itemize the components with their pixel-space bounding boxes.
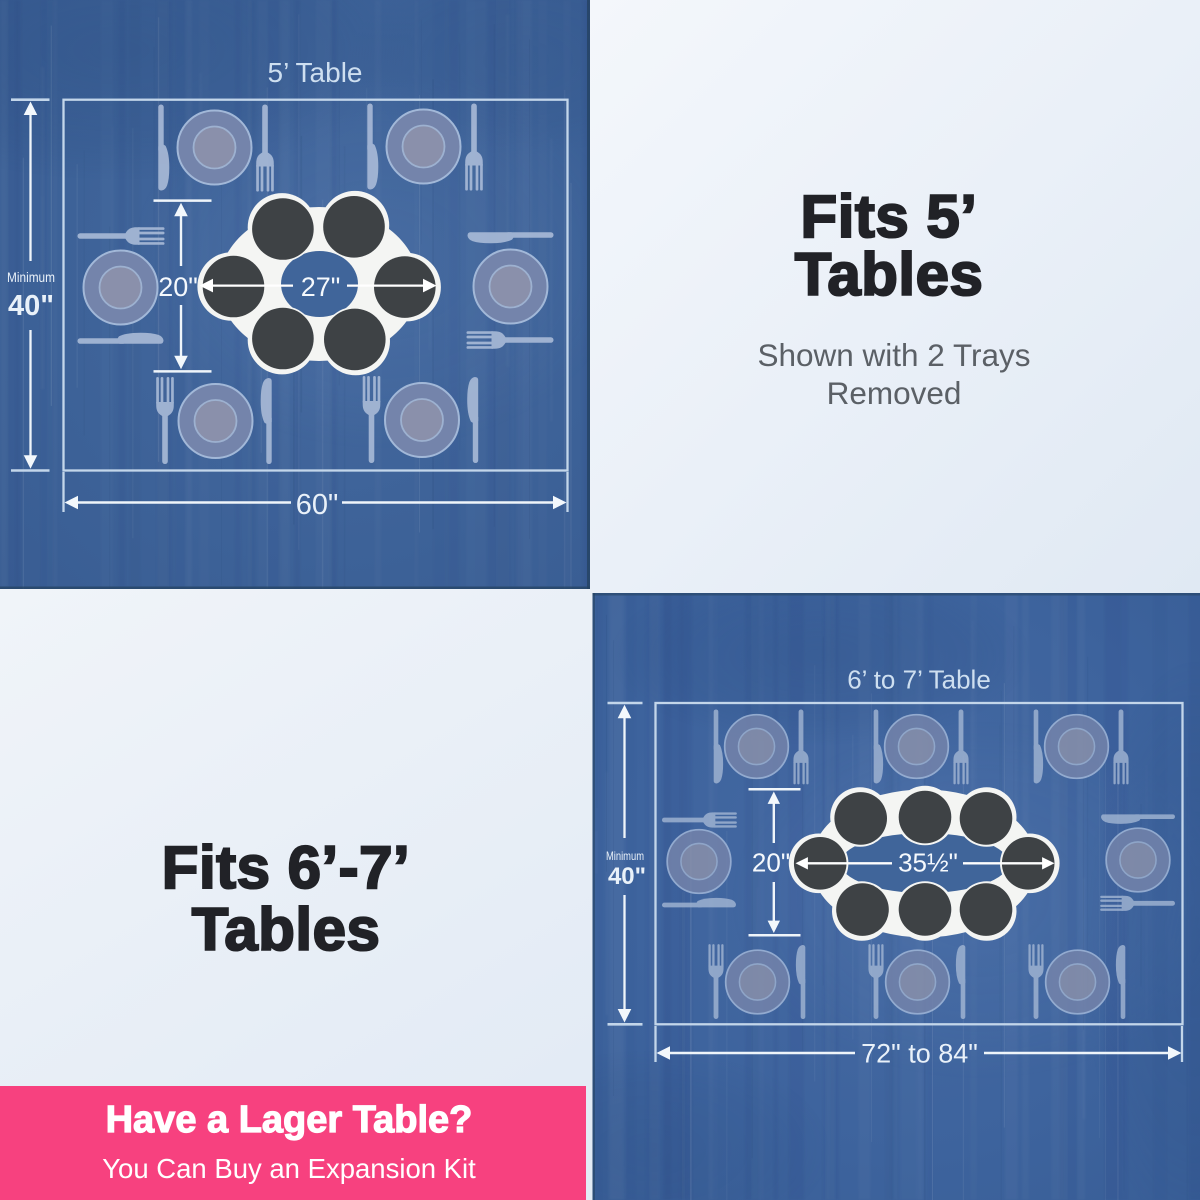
svg-text:20": 20" [158, 272, 198, 302]
svg-text:5’ Table: 5’ Table [268, 57, 363, 88]
svg-text:27": 27" [301, 272, 341, 302]
svg-text:20": 20" [752, 848, 790, 878]
svg-text:40": 40" [8, 290, 54, 322]
svg-text:40": 40" [608, 863, 646, 890]
svg-text:60": 60" [296, 489, 339, 521]
svg-text:6’ to 7’ Table: 6’ to 7’ Table [847, 665, 991, 695]
svg-text:72" to 84": 72" to 84" [861, 1039, 978, 1069]
svg-text:35½": 35½" [898, 848, 958, 878]
svg-text:Minimum: Minimum [7, 269, 55, 285]
svg-text:Minimum: Minimum [606, 849, 644, 863]
